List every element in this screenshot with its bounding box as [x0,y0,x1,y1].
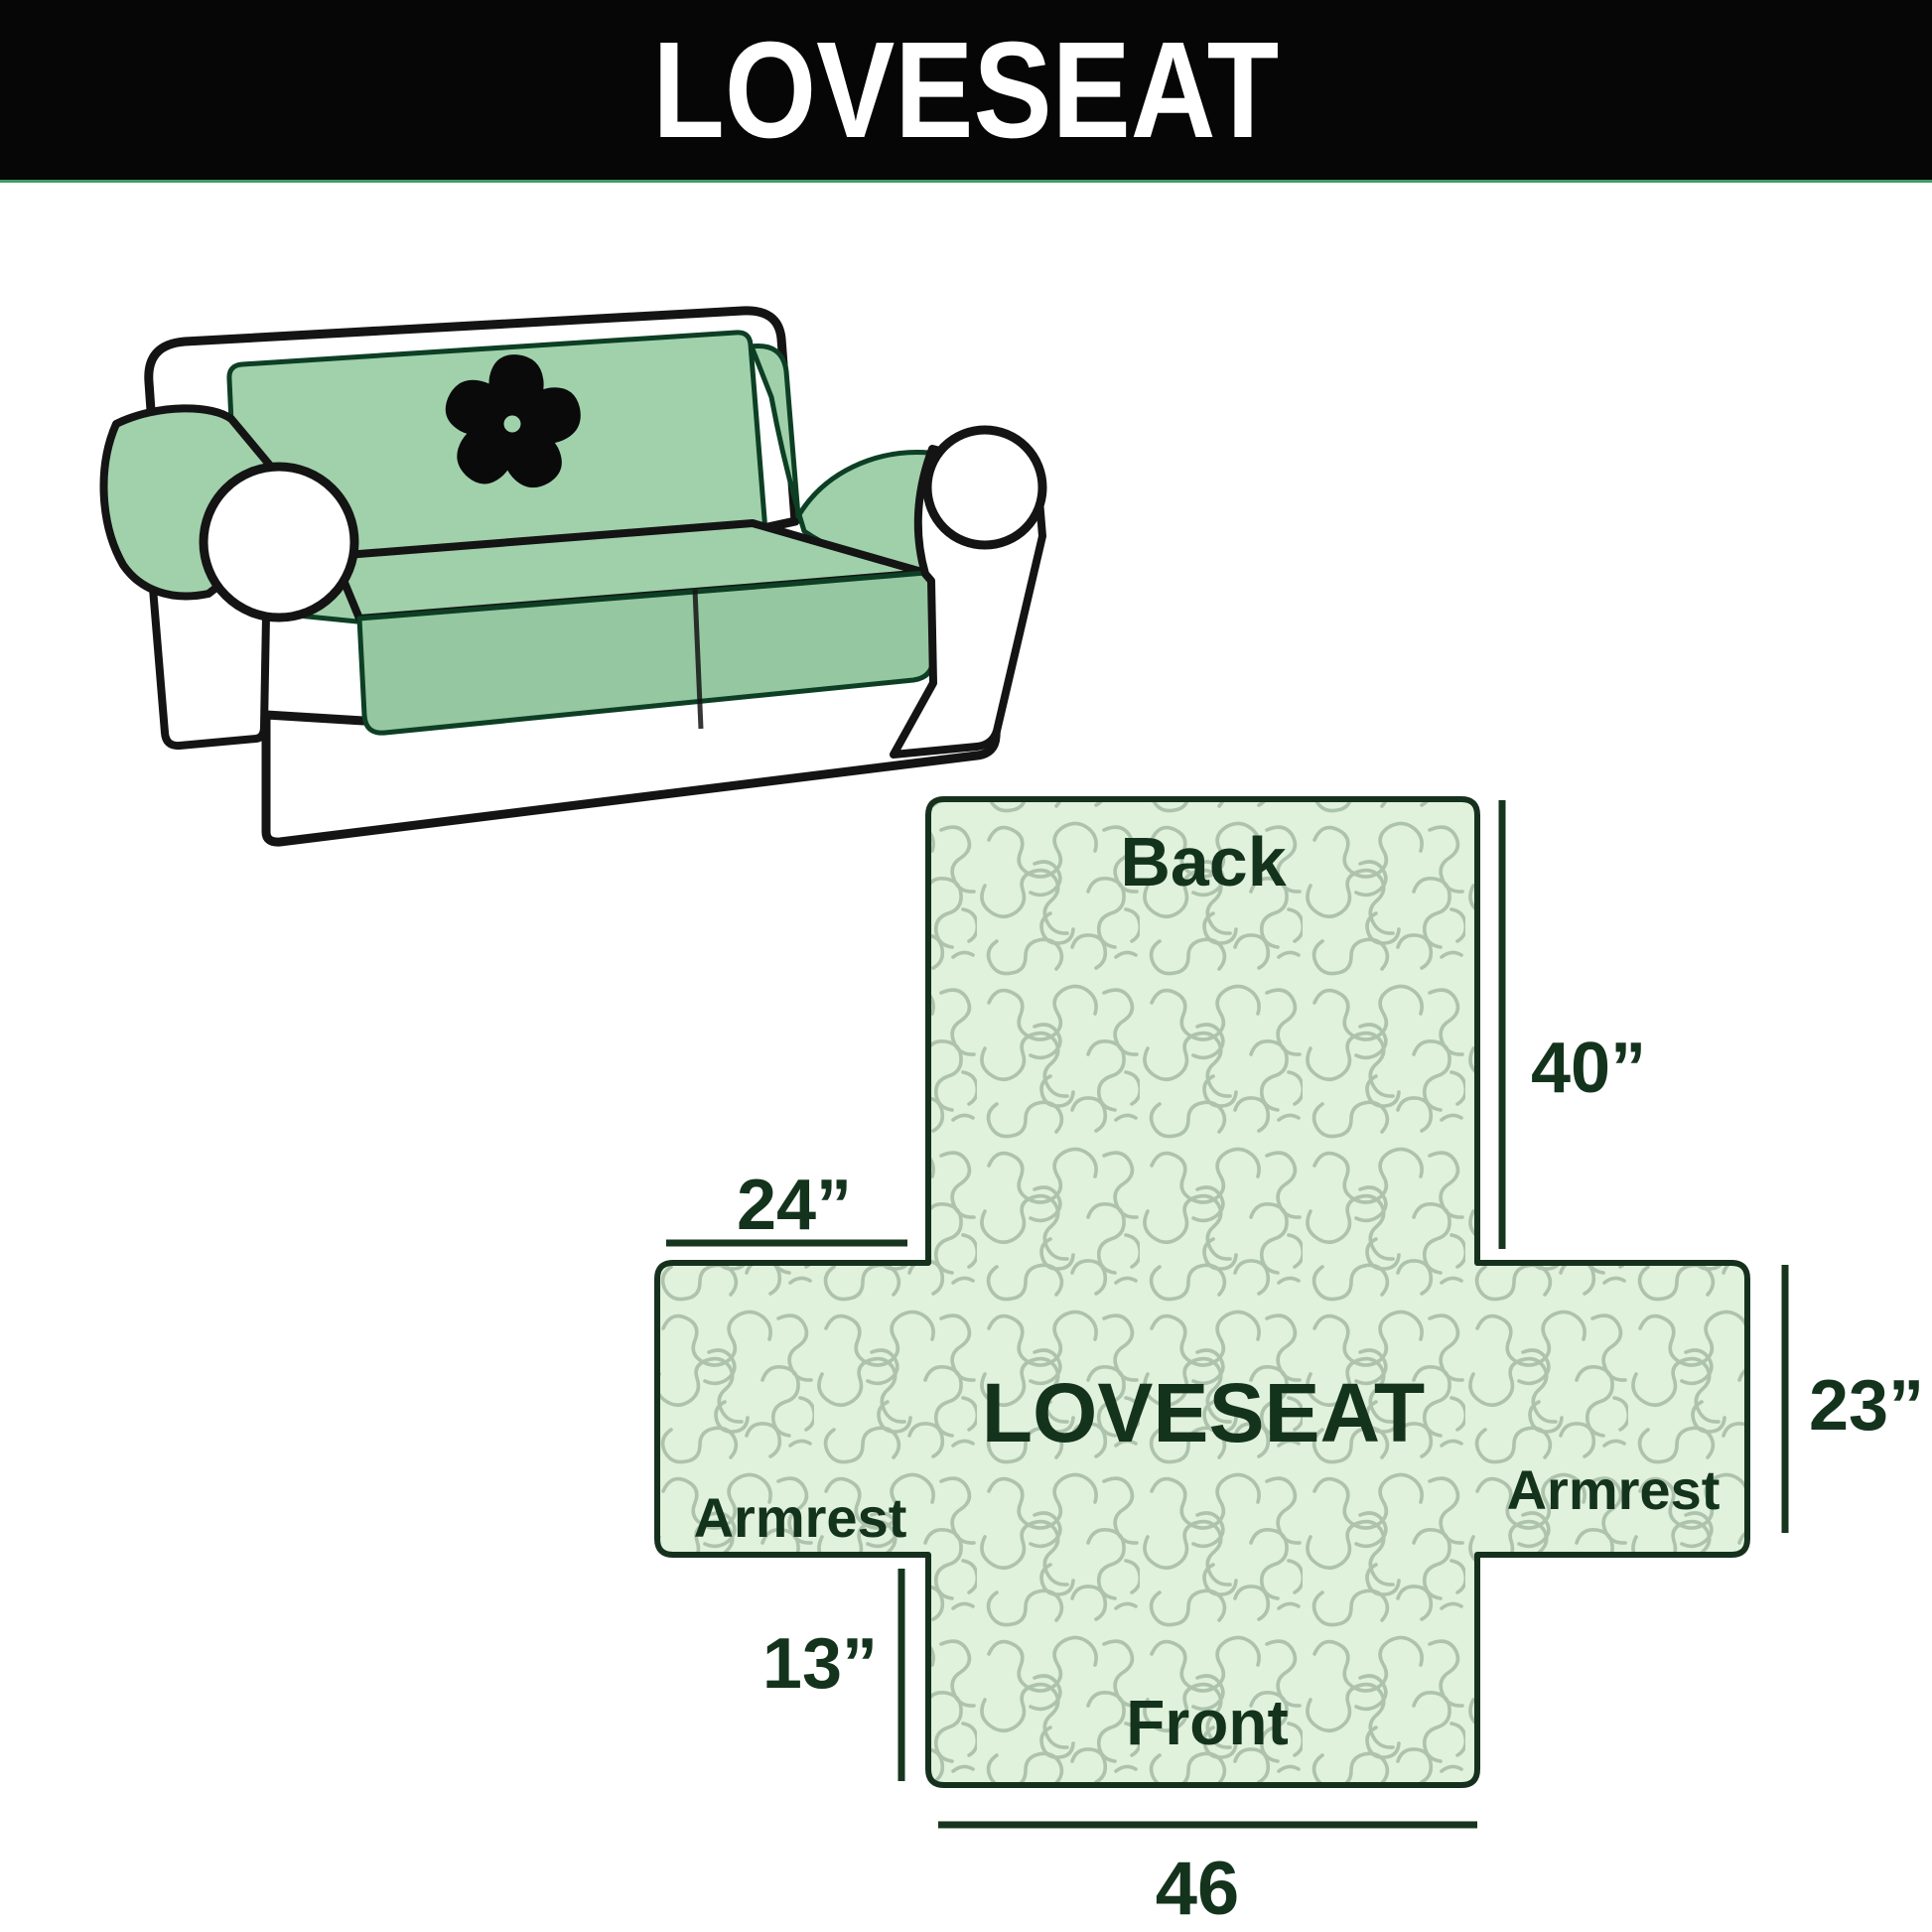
header-bar: LOVESEAT [0,0,1932,183]
page-title: LOVESEAT [653,22,1280,159]
label-front: Front [1126,1687,1289,1758]
dim-label-front-flap: 13” [762,1624,878,1704]
dim-label-armrest-width: 24” [737,1166,852,1245]
label-back: Back [1120,823,1286,900]
label-armrest-left: Armrest [694,1486,907,1549]
sofa-left-arm-knob [204,467,354,618]
dim-label-armrest-height: 23” [1809,1366,1924,1446]
sofa-right-arm-knob [927,430,1042,545]
dim-label-back-height: 40” [1531,1029,1646,1108]
label-center-product: LOVESEAT [982,1366,1426,1459]
label-armrest-right: Armrest [1507,1458,1721,1521]
cover-dimension-diagram: Back LOVESEAT Armrest Armrest Front 40” … [556,774,1932,1932]
dim-label-front-width: 46 [1156,1847,1240,1931]
page: LOVESEAT [0,0,1932,1932]
